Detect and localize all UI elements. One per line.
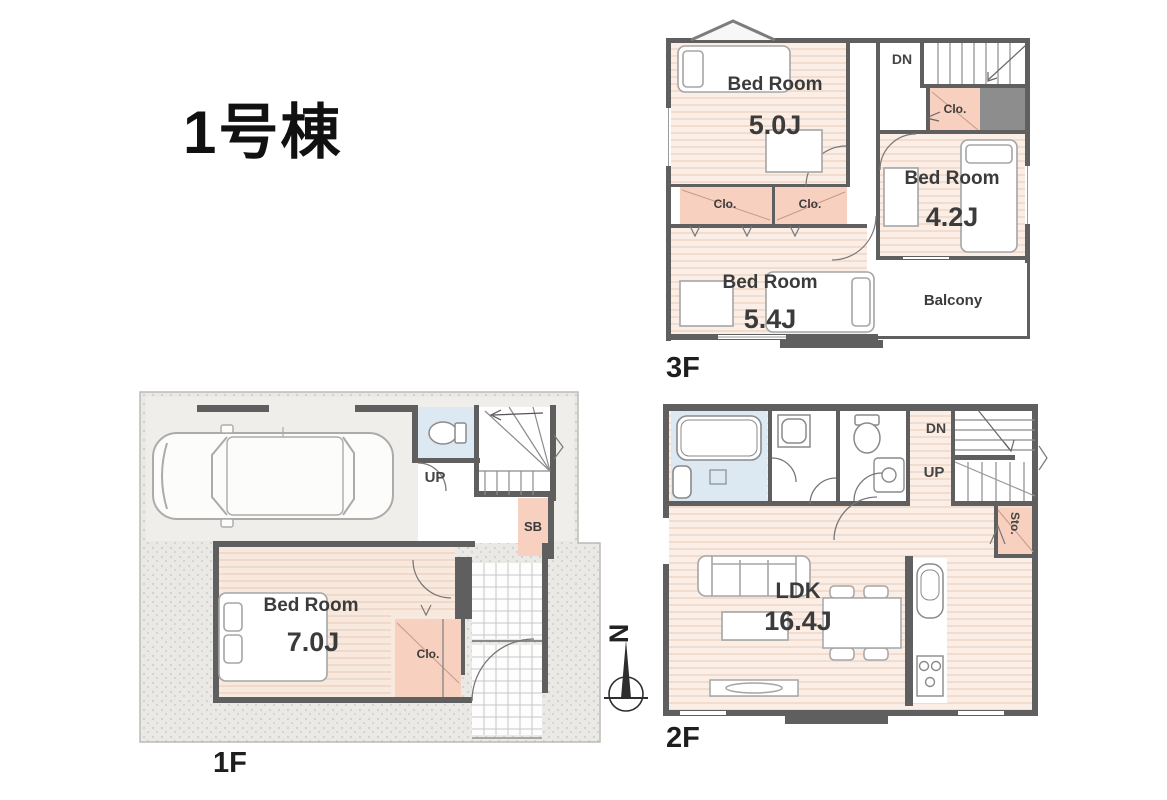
room-size: 16.4J [764, 606, 832, 637]
stairs-up-label: UP [924, 464, 945, 481]
toilet-icon [429, 422, 466, 444]
stove-icon [917, 656, 943, 696]
pillow-icon [966, 145, 1012, 163]
floor-label-3f: 3F [666, 352, 700, 385]
bathtub-icon [673, 416, 761, 498]
closet-label: Clo. [799, 197, 822, 211]
kitchen-sink-icon [917, 564, 943, 618]
room-size: 7.0J [287, 627, 340, 658]
floorplan-sheet: 1号棟 [0, 0, 1167, 800]
closet-label: Clo. [944, 102, 967, 116]
balcony-label: Balcony [924, 292, 982, 309]
room-size: 4.2J [926, 202, 979, 233]
room-label: Bed Room [728, 74, 823, 96]
door-arcs-2f [772, 458, 882, 540]
room-label: LDK [775, 578, 820, 604]
floor-label-1f: 1F [213, 747, 247, 780]
closet-label: Clo. [417, 647, 440, 661]
room-label: Bed Room [905, 168, 1000, 190]
stairs-up-label: UP [425, 469, 446, 486]
shoe-box-label: SB [524, 519, 542, 534]
floor-plan-1f: UP SB Bed Room 7.0J Clo. 1F [133, 383, 621, 788]
room-size: 5.0J [749, 110, 802, 141]
room-label: Bed Room [264, 595, 359, 617]
floor-plan-3f: Bed Room 5.0J DN Clo. Bed Room 4.2J Clo.… [658, 18, 1043, 390]
floor-plan-2f: DN UP Sto. LDK 16.4J 2F [658, 398, 1048, 768]
pillow-icon [852, 278, 870, 326]
stairs-dn-label: DN [892, 51, 912, 67]
dining-table-icon [823, 586, 901, 660]
toilet-icon [854, 415, 880, 453]
compass-icon [592, 610, 672, 722]
stairs-dn-label: DN [926, 420, 946, 436]
car-icon [153, 425, 393, 527]
washbasin-icon [874, 458, 904, 492]
compass: N [592, 610, 672, 722]
floor-label-2f: 2F [666, 722, 700, 755]
tv-board-icon [710, 680, 798, 696]
gable-icon [691, 21, 775, 40]
washer-icon [778, 415, 810, 447]
plan-2f-drawing [658, 398, 1048, 768]
room-label: Bed Room [723, 272, 818, 294]
pillow-icon [683, 51, 703, 87]
closet-label: Clo. [714, 197, 737, 211]
storage-label: Sto. [1008, 512, 1022, 535]
stairs-dn-icon [938, 43, 1026, 84]
room-size: 5.4J [744, 304, 797, 335]
plan-1f-drawing [133, 383, 621, 788]
building-title: 1号棟 [183, 84, 342, 171]
